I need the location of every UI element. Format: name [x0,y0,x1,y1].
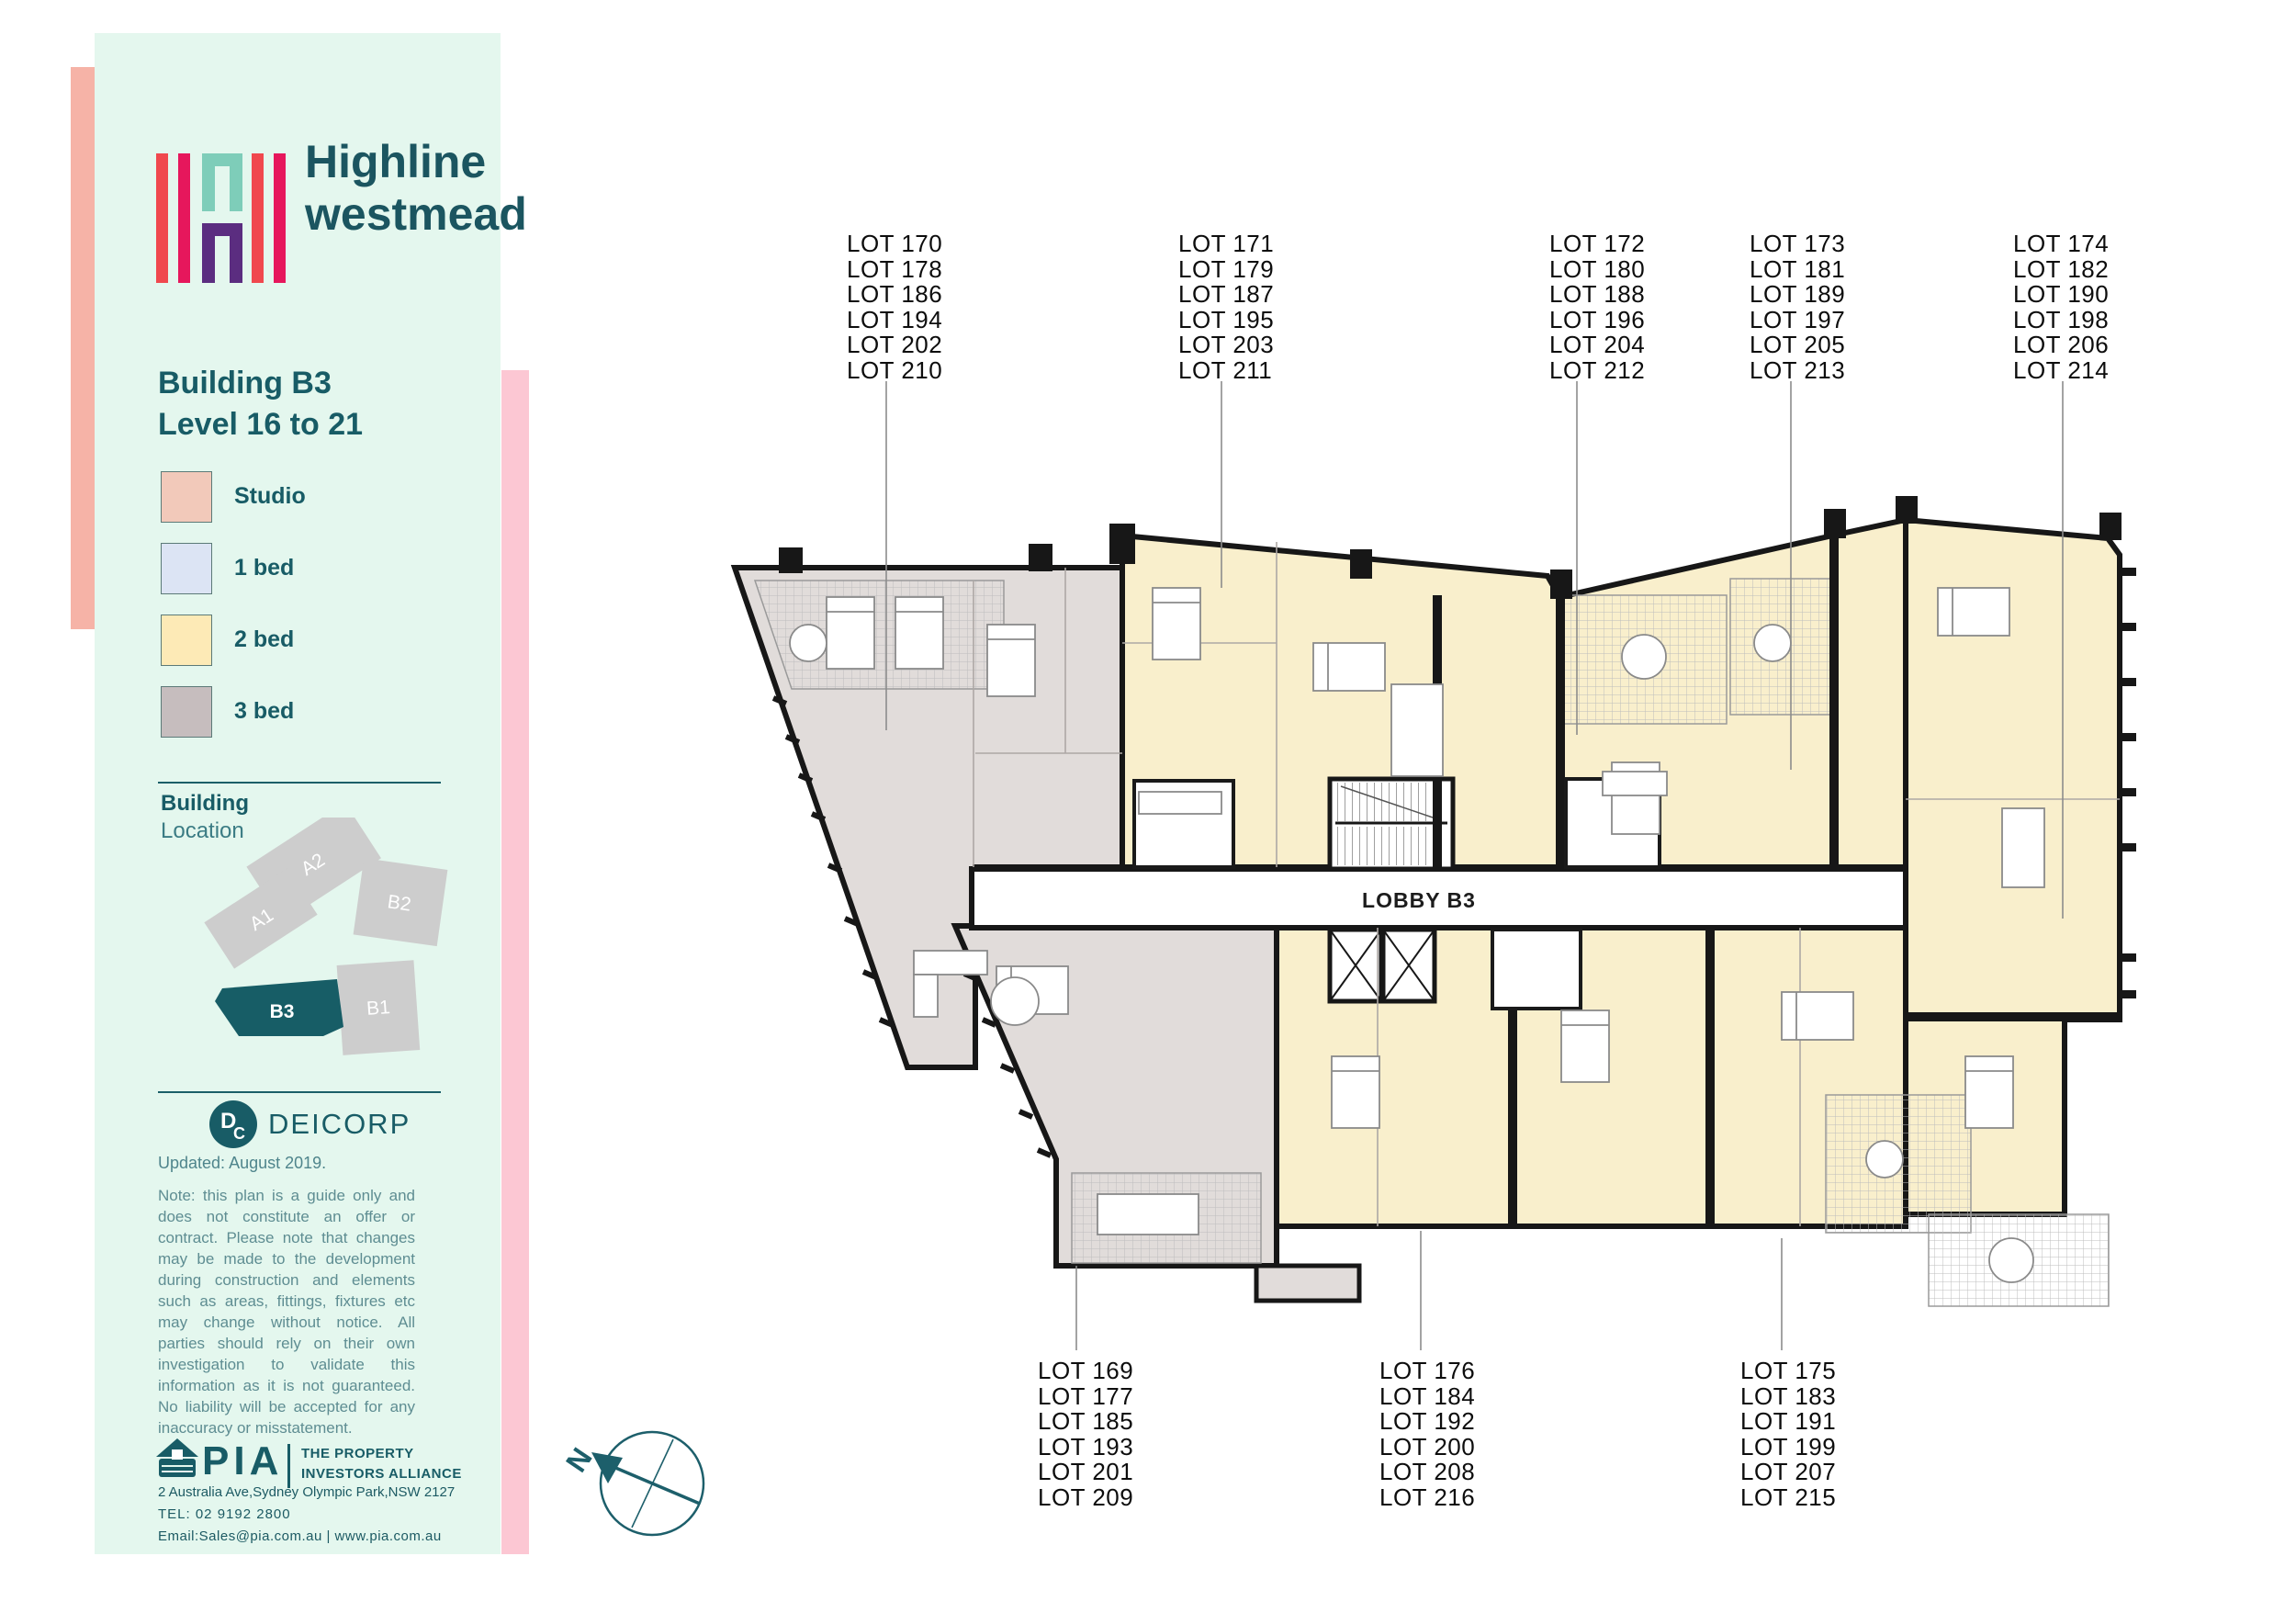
lot-label: LOT 204 [1549,333,1645,358]
2bed-color-swatch [161,615,212,666]
lot-group-top-3: LOT 172LOT 180LOT 188LOT 196LOT 204LOT 2… [1549,231,1645,383]
legend-label: 2 bed [234,615,294,664]
updated-date: Updated: August 2019. [158,1154,326,1173]
lot-label: LOT 197 [1750,308,1845,333]
brand-line2: westmead [305,188,527,241]
lobby-label: LOBBY B3 [1362,888,1476,912]
level-range: 16 to 21 [246,407,363,442]
lot-label: LOT 212 [1549,358,1645,384]
lot-label: LOT 203 [1178,333,1274,358]
lot-label: LOT 201 [1038,1460,1133,1485]
brand-name: Highline westmead [305,136,527,241]
lot-label: LOT 190 [2013,282,2109,308]
1bed-color-swatch [161,543,212,594]
building-location-map: A2 A1 B2 B1 B3 [204,818,456,1093]
lot-label: LOT 209 [1038,1485,1133,1511]
lot-label: LOT 171 [1178,231,1274,257]
floorplan-page: Highline westmead Building B3 Level 16 t… [0,0,2296,1624]
lot-label: LOT 172 [1549,231,1645,257]
salmon-accent-bar [71,67,95,629]
lot-label: LOT 213 [1750,358,1845,384]
legend-label: 1 bed [234,543,294,592]
svg-text:C: C [233,1124,245,1143]
lot-label: LOT 207 [1740,1460,1836,1485]
pia-tagline-2: INVESTORS ALLIANCE [301,1464,462,1484]
lot-label: LOT 173 [1750,231,1845,257]
lot-group-bottom-1: LOT 169LOT 177LOT 185LOT 193LOT 201LOT 2… [1038,1359,1133,1510]
lot-group-top-5: LOT 174LOT 182LOT 190LOT 198LOT 206LOT 2… [2013,231,2109,383]
building-title: Building B3 [158,366,332,401]
lot-group-top-2: LOT 171LOT 179LOT 187LOT 195LOT 203LOT 2… [1178,231,1274,383]
north-compass: N [560,1419,744,1557]
building-b1-label: B2 [386,891,412,915]
lot-label: LOT 182 [2013,257,2109,283]
lot-label: LOT 211 [1178,358,1274,384]
lot-label: LOT 189 [1750,282,1845,308]
lot-label: LOT 199 [1740,1435,1836,1460]
pia-logo-icon [156,1438,198,1479]
lot-label: LOT 216 [1379,1485,1475,1511]
lot-label: LOT 200 [1379,1435,1475,1460]
lot-label: LOT 181 [1750,257,1845,283]
pia-address: 2 Australia Ave,Sydney Olympic Park,NSW … [158,1484,455,1500]
disclaimer-note: Note: this plan is a guide only and does… [158,1185,415,1438]
legend-item-3bed: 3 bed [161,686,464,738]
lot-label: LOT 180 [1549,257,1645,283]
lot-label: LOT 205 [1750,333,1845,358]
lot-label: LOT 184 [1379,1384,1475,1410]
lot-label: LOT 176 [1379,1359,1475,1384]
lot-group-top-4: LOT 173LOT 181LOT 189LOT 197LOT 205LOT 2… [1750,231,1845,383]
brand-line1: Highline [305,136,527,188]
legend-item-2bed: 2 bed [161,615,464,666]
lot-label: LOT 206 [2013,333,2109,358]
legend-item-studio: Studio [161,471,464,523]
pia-tagline-1: THE PROPERTY [301,1444,462,1464]
lot-label: LOT 215 [1740,1485,1836,1511]
lot-label: LOT 191 [1740,1409,1836,1435]
lot-label: LOT 214 [2013,358,2109,384]
legend-item-1bed: 1 bed [161,543,464,594]
lot-label: LOT 170 [847,231,942,257]
pia-phone: TEL: 02 9192 2800 [158,1506,291,1522]
lot-label: LOT 208 [1379,1460,1475,1485]
lot-label: LOT 187 [1178,282,1274,308]
legend-label: 3 bed [234,686,294,736]
highline-logo-icon [156,153,287,283]
lot-label: LOT 198 [2013,308,2109,333]
elevator-core [1330,930,1435,1001]
lot-label: LOT 192 [1379,1409,1475,1435]
pia-divider [287,1444,290,1488]
lot-label: LOT 202 [847,333,942,358]
lot-label: LOT 210 [847,358,942,384]
lot-group-bottom-2: LOT 176LOT 184LOT 192LOT 200LOT 208LOT 2… [1379,1359,1475,1510]
building-b3-label: B3 [270,1001,295,1022]
lot-label: LOT 186 [847,282,942,308]
lot-label: LOT 196 [1549,308,1645,333]
lot-group-bottom-3: LOT 175LOT 183LOT 191LOT 199LOT 207LOT 2… [1740,1359,1836,1510]
north-label: N [560,1442,599,1478]
lot-group-top-1: LOT 170LOT 178LOT 186LOT 194LOT 202LOT 2… [847,231,942,383]
lot-label: LOT 183 [1740,1384,1836,1410]
pia-email: Email:Sales@pia.com.au | www.pia.com.au [158,1528,442,1544]
lot-label: LOT 188 [1549,282,1645,308]
level-title: Level 16 to 21 [158,407,363,443]
legend-label: Studio [234,471,306,521]
3bed-color-swatch [161,686,212,738]
unit-3bed-bottom-stub [1256,1266,1359,1301]
lot-label: LOT 177 [1038,1384,1133,1410]
stair-flight-lower [1335,827,1447,865]
divider-line [158,782,441,784]
lot-label: LOT 178 [847,257,942,283]
lot-label: LOT 174 [2013,231,2109,257]
stair-flight-upper [1335,783,1447,821]
lot-label: LOT 194 [847,308,942,333]
building-b2-label: B1 [366,997,390,1020]
deicorp-logo-icon: D C [209,1100,257,1148]
pia-tagline: THE PROPERTY INVESTORS ALLIANCE [301,1444,462,1484]
lot-label: LOT 193 [1038,1435,1133,1460]
pink-accent-bar [501,370,529,1554]
lot-label: LOT 185 [1038,1409,1133,1435]
lot-label: LOT 175 [1740,1359,1836,1384]
lot-label: LOT 169 [1038,1359,1133,1384]
divider-line [158,1091,441,1093]
level-word: Level [158,407,238,442]
pia-wordmark: PIA [202,1438,283,1484]
building-location-heading: Building [161,791,249,817]
deicorp-wordmark: DEICORP [268,1108,411,1141]
lot-label: LOT 195 [1178,308,1274,333]
studio-color-swatch [161,471,212,523]
lot-label: LOT 179 [1178,257,1274,283]
